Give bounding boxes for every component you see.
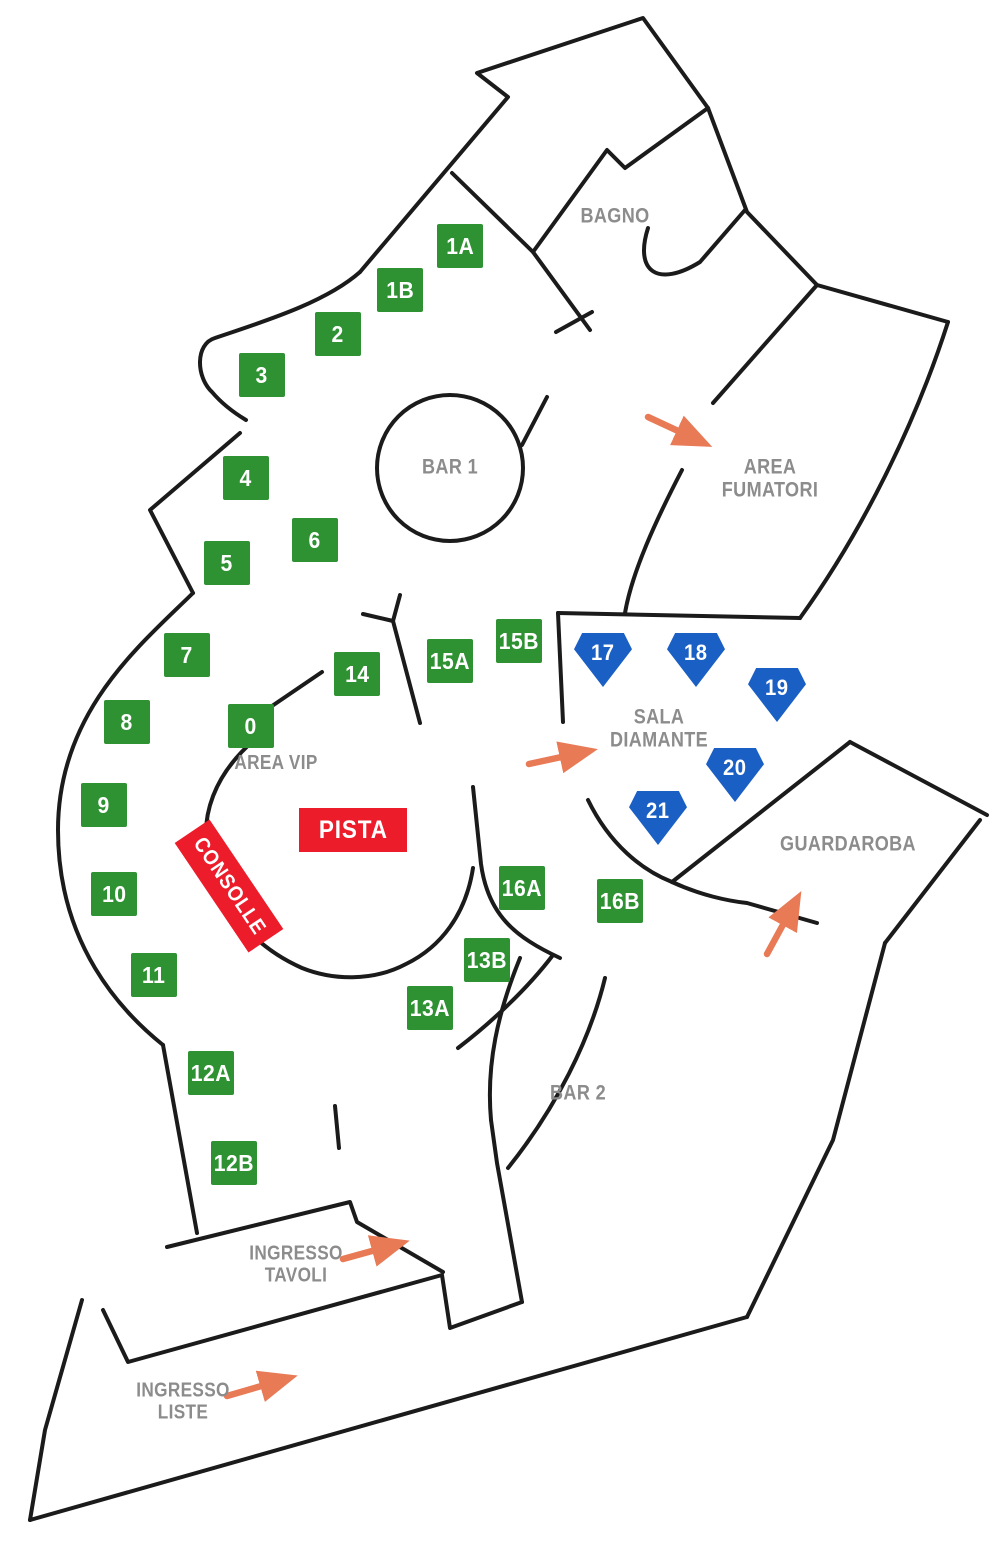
table-9[interactable]: 9 [81,783,127,827]
table-6[interactable]: 6 [292,518,338,562]
table-label: 12B [214,1150,254,1177]
club-floor-plan: BAGNOBAR 1AREA FUMATORISALA DIAMANTEAREA… [0,0,1000,1544]
table-15B[interactable]: 15B [496,619,542,663]
table-2[interactable]: 2 [315,312,361,356]
table-label: 15A [430,648,470,675]
table-label: 12A [191,1060,231,1087]
table-7[interactable]: 7 [164,633,210,677]
table-label: 5 [221,550,233,577]
table-label: 0 [245,713,257,740]
table-label: 17 [591,640,614,666]
table-16B[interactable]: 16B [597,879,643,923]
table-label: 13A [410,995,450,1022]
table-label: 16B [600,888,640,915]
table-3[interactable]: 3 [239,353,285,397]
table-label: 21 [646,798,669,824]
vip-diamond-table-21[interactable]: 21 [629,791,687,845]
table-13B[interactable]: 13B [464,938,510,982]
table-label: 19 [765,675,788,701]
table-1A[interactable]: 1A [437,224,483,268]
table-12B[interactable]: 12B [211,1141,257,1185]
vip-diamond-table-20[interactable]: 20 [706,748,764,802]
table-label: 1A [446,233,474,260]
table-16A[interactable]: 16A [499,866,545,910]
table-label: 4 [240,465,252,492]
table-label: 14 [345,661,369,688]
table-0[interactable]: 0 [228,704,274,748]
table-label: 16A [502,875,542,902]
vip-diamond-table-19[interactable]: 19 [748,668,806,722]
table-label: 7 [181,642,193,669]
vip-diamond-table-17[interactable]: 17 [574,633,632,687]
table-10[interactable]: 10 [91,872,137,916]
table-15A[interactable]: 15A [427,639,473,683]
table-label: 10 [102,881,126,908]
table-8[interactable]: 8 [104,700,150,744]
table-11[interactable]: 11 [131,953,177,997]
table-label: 8 [121,709,133,736]
table-5[interactable]: 5 [204,541,250,585]
table-label: 11 [142,962,165,989]
table-4[interactable]: 4 [223,456,269,500]
table-12A[interactable]: 12A [188,1051,234,1095]
table-13A[interactable]: 13A [407,986,453,1030]
table-14[interactable]: 14 [334,652,380,696]
pista-label: PISTA [318,816,387,845]
vip-diamond-table-18[interactable]: 18 [667,633,725,687]
table-label: 15B [499,628,539,655]
table-label: 9 [98,792,110,819]
table-label: 2 [332,321,344,348]
table-label: 18 [684,640,707,666]
table-label: 20 [723,755,746,781]
table-1B[interactable]: 1B [377,268,423,312]
table-label: 1B [386,277,414,304]
table-label: 6 [309,527,321,554]
pista-dance-floor: PISTA [299,808,407,852]
table-label: 13B [467,947,507,974]
table-label: 3 [256,362,268,389]
table-markers-layer: 1A1B23456789101112A12B01415A15B13A13B16A… [0,0,1000,1544]
